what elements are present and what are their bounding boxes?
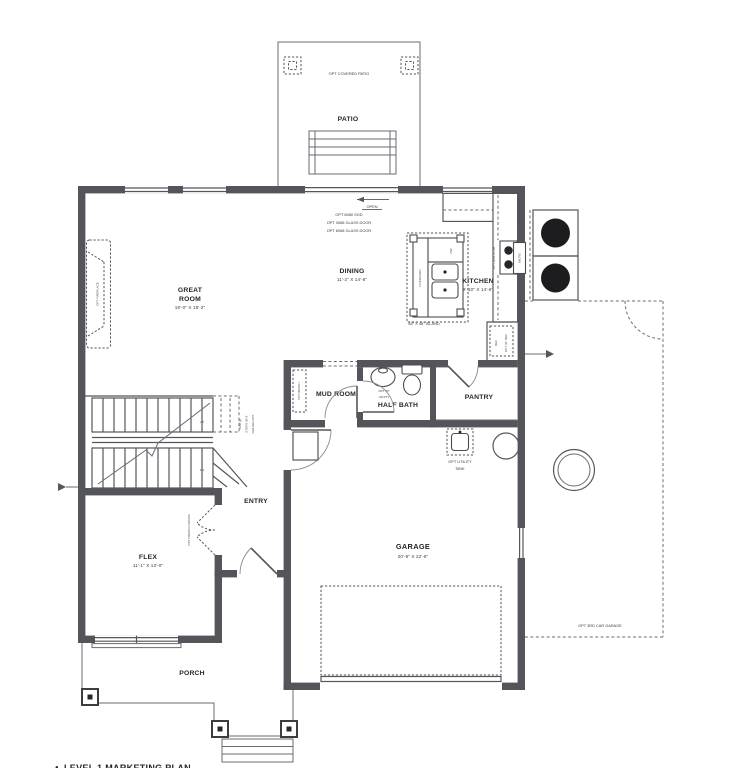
patio-door-opening xyxy=(305,186,398,193)
porch-steps xyxy=(222,739,293,762)
garage-door xyxy=(321,677,501,682)
opt-bench-label: OPT BENCH xyxy=(297,382,301,399)
opt-french-doors: OPT FRENCH DOORS xyxy=(187,505,215,555)
opt-6068-label: OPT 6068 GLASS DOOR xyxy=(327,228,372,233)
furnace-equipment xyxy=(554,450,595,491)
wall-left xyxy=(78,186,85,643)
great-room-label-1: GREAT xyxy=(178,287,203,294)
dining-label: DINING xyxy=(340,268,365,275)
window xyxy=(183,186,226,193)
wall-right-a xyxy=(518,186,525,528)
footer: ● LEVEL 1 MARKETING PLAN xyxy=(55,763,191,768)
great-room-dims: 18'-0" X 18'-2" xyxy=(175,305,206,310)
rear-door-annotations: OPEN OPT 8080 SGD OPT 3068 GLASS DOOR OP… xyxy=(327,197,389,233)
garage-dims: 20'-9" X 22'-6" xyxy=(398,554,429,559)
porch-column-3 xyxy=(281,721,297,737)
ac-unit-1 xyxy=(541,219,570,248)
garage-label: GARAGE xyxy=(396,542,430,551)
porch-column-1 xyxy=(82,689,98,705)
water-heater xyxy=(493,433,519,459)
opt-fireplace: OPT FIREPLACE xyxy=(87,240,111,348)
stair-winder xyxy=(213,448,247,487)
garage-entry-door xyxy=(291,430,331,470)
pantry-label: PANTRY xyxy=(465,394,494,401)
microwave: MICRO xyxy=(514,243,526,274)
opt-french-doors-label: OPT FRENCH DOORS xyxy=(187,514,191,545)
wall-garage-left-b xyxy=(284,470,291,690)
wall-entry-front-a xyxy=(215,570,237,577)
ac-unit-2 xyxy=(541,264,570,293)
kitchen: OPT GAS STUB MICRO OVERHANG DW 84" X 48"… xyxy=(407,193,526,360)
open-label: OPEN xyxy=(366,204,377,209)
opt-3068-label: OPT 3068 GLASS DOOR xyxy=(327,220,372,225)
dining-room: DINING 11'-2" X 14'-6" xyxy=(337,268,367,282)
opt-fireplace-label: OPT FIREPLACE xyxy=(96,282,100,306)
wall-mud-bath-a xyxy=(357,367,363,381)
wall-flex-right-b xyxy=(215,555,222,643)
wall-mud-top-a xyxy=(291,360,323,367)
patio-column-right xyxy=(401,57,418,74)
ref-label: REF xyxy=(494,340,498,346)
stair-break-line xyxy=(98,403,210,484)
dining-dims: 11'-2" X 14'-6" xyxy=(337,277,367,282)
keynote-marker-left xyxy=(58,483,78,491)
front-door-leaf xyxy=(251,548,277,574)
dw-label: DW xyxy=(449,248,453,253)
mud-room-label: MUD ROOM xyxy=(316,391,356,398)
porch-outline xyxy=(82,643,293,736)
dn-label: DN xyxy=(200,468,204,472)
cased-opening-mud xyxy=(323,362,357,367)
toilet xyxy=(402,365,422,395)
ac-units xyxy=(530,210,578,300)
entry-label: ENTRY xyxy=(244,498,268,505)
opt-third-car-label: OPT 3RD CAR GARAGE xyxy=(578,623,622,628)
island-dims: 84" X 48" ISLAND xyxy=(408,321,439,326)
flex-dims: 11'-1" X 13'-0" xyxy=(133,563,163,568)
furnace-equipment-inner xyxy=(558,454,590,486)
wall-mud-left xyxy=(284,360,291,420)
porch: PORCH xyxy=(82,643,297,762)
keynote-marker-right xyxy=(525,350,554,358)
footer-label: LEVEL 1 MARKETING PLAN xyxy=(64,763,191,768)
garage-step xyxy=(293,432,318,460)
window xyxy=(125,186,168,193)
kitchen-label: KITCHEN xyxy=(462,278,494,285)
ref-note: OPT 36" REF xyxy=(504,334,508,352)
pantry-door-arc xyxy=(469,366,478,387)
vanity-sink xyxy=(371,368,395,387)
wall-bath-pantry xyxy=(430,360,436,427)
wall-stairs-bottom xyxy=(78,488,222,495)
garage-clearance-dashed xyxy=(321,586,501,675)
up-label: UP xyxy=(200,420,204,424)
micro-label: MICRO xyxy=(518,252,522,263)
flex-window xyxy=(92,636,181,648)
kitchen-dims: 9'-10" X 14'-6" xyxy=(463,287,494,292)
great-room: GREAT ROOM 18'-0" X 18'-2" OPT FIREPLACE xyxy=(87,240,206,348)
wall-garage-bottom-a xyxy=(284,683,320,690)
porch-column-2 xyxy=(212,721,228,737)
half-bath: OPT 30" VANITY HALF BATH xyxy=(363,365,422,412)
window xyxy=(443,186,492,193)
overhang-label: OVERHANG xyxy=(418,269,422,287)
opt-utility-sink-label-2: SINK xyxy=(455,466,464,471)
patio-column-left xyxy=(284,57,301,74)
porch-label: PORCH xyxy=(179,670,205,677)
half-bath-label: HALF BATH xyxy=(378,402,418,409)
flex-label: FLEX xyxy=(139,554,157,561)
wall-mud-top-c xyxy=(478,360,518,367)
stairs-opt-label-1: ADD (2) xyxy=(238,419,242,430)
stair-treads-up xyxy=(103,398,202,432)
opt-bench: OPT BENCH xyxy=(293,370,306,412)
opt-vanity-label-2: VANITY xyxy=(379,395,390,399)
stairs: UP DN ADD (2) STEPS W/ 9' CEILING OPT xyxy=(85,396,255,488)
wall-garage-top-b xyxy=(357,420,518,427)
garage: GARAGE 20'-9" X 22'-6" OPT UTILITY SINK xyxy=(291,429,595,682)
mud-room: OPT BENCH MUD ROOM xyxy=(293,370,357,418)
patio-label: PATIO xyxy=(338,116,359,123)
flex-room: FLEX 11'-1" X 13'-0" OPT FRENCH DOORS xyxy=(92,505,215,648)
opt-sgd-label: OPT 8080 SGD xyxy=(335,212,362,217)
patio-area: OPT COVERED PATIO PATIO xyxy=(278,42,420,186)
opt-gas-stub-label: OPT GAS STUB xyxy=(492,247,496,269)
wall-mud-bath-b xyxy=(357,412,363,420)
kitchen-island: OVERHANG DW xyxy=(407,233,468,322)
open-arrow-head xyxy=(357,197,364,202)
great-room-label-2: ROOM xyxy=(179,296,201,303)
stairs-opt-label-2: STEPS W/ 9' xyxy=(245,415,249,433)
third-car-door-arc xyxy=(625,301,663,339)
entry: ENTRY xyxy=(240,498,277,574)
patio-steps xyxy=(309,131,396,174)
opt-utility-sink-label-1: OPT UTILITY xyxy=(448,459,472,464)
garage-right-window xyxy=(518,528,525,558)
patio-outline xyxy=(278,42,420,186)
floor-plan: OPT COVERED PATIO PATIO xyxy=(0,0,735,768)
opt-utility-sink: OPT UTILITY SINK xyxy=(447,429,473,471)
refrigerator-nook: REF OPT 36" REF xyxy=(487,322,517,360)
pantry-door-leaf xyxy=(448,366,469,387)
stairs-opt-label-3: CEILING OPT xyxy=(251,414,255,433)
wall-garage-top-a xyxy=(284,420,325,427)
opt-covered-patio-label: OPT COVERED PATIO xyxy=(329,71,369,76)
front-door-arc xyxy=(240,548,251,574)
pantry: PANTRY xyxy=(436,366,517,420)
wall-right-b xyxy=(518,558,525,690)
